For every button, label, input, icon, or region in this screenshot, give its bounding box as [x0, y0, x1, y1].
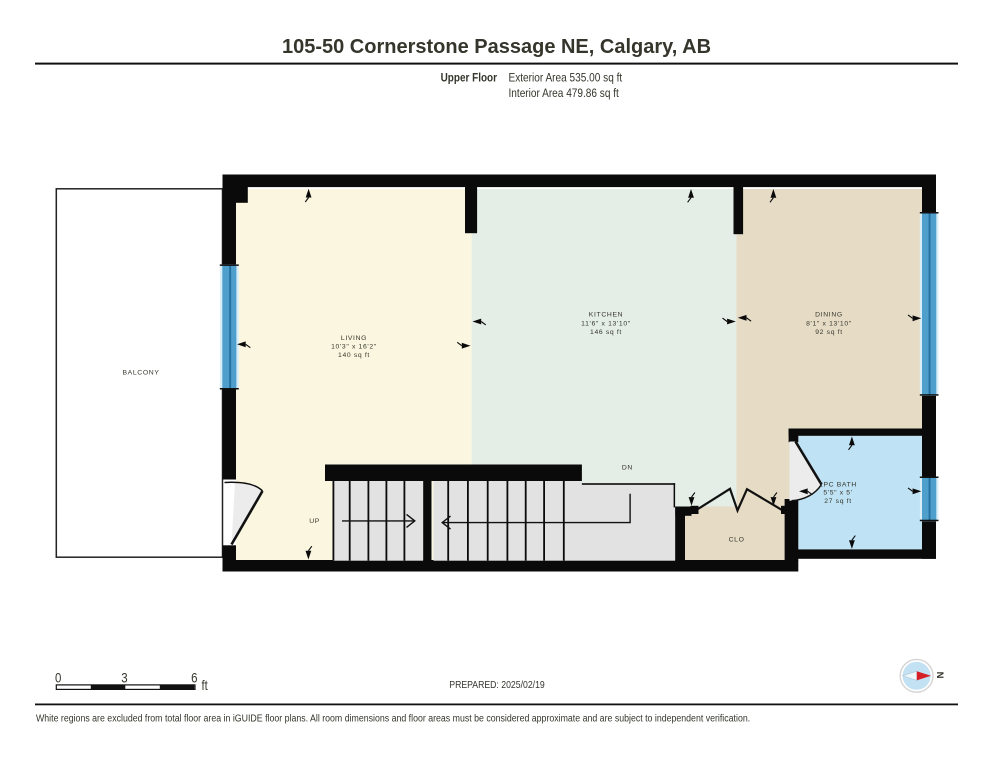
- svg-text:27 sq ft: 27 sq ft: [824, 498, 852, 505]
- svg-text:DN: DN: [622, 465, 633, 472]
- svg-text:N: N: [934, 672, 945, 679]
- svg-text:6: 6: [191, 671, 197, 686]
- svg-text:0: 0: [55, 671, 61, 686]
- svg-text:Upper Floor: Upper Floor: [441, 72, 498, 85]
- svg-text:10'3" x 16'2": 10'3" x 16'2": [331, 344, 377, 351]
- svg-text:CLO: CLO: [729, 536, 745, 543]
- svg-text:8'1" x 13'10": 8'1" x 13'10": [806, 320, 852, 327]
- svg-text:Exterior Area 535.00 sq ft: Exterior Area 535.00 sq ft: [509, 72, 623, 85]
- svg-text:92 sq ft: 92 sq ft: [815, 329, 843, 336]
- svg-text:2PC BATH: 2PC BATH: [819, 481, 857, 488]
- svg-text:5'5" x 5': 5'5" x 5': [823, 490, 852, 497]
- svg-text:ft: ft: [202, 678, 209, 693]
- svg-text:DINING: DINING: [815, 312, 843, 319]
- svg-text:PREPARED: 2025/02/19: PREPARED: 2025/02/19: [449, 679, 544, 690]
- svg-text:LIVING: LIVING: [341, 335, 367, 342]
- svg-text:3: 3: [121, 671, 127, 686]
- svg-text:BALCONY: BALCONY: [122, 370, 159, 377]
- svg-text:105-50 Cornerstone Passage NE,: 105-50 Cornerstone Passage NE, Calgary, …: [282, 36, 711, 58]
- svg-text:146 sq ft: 146 sq ft: [590, 329, 622, 336]
- svg-text:Interior Area 479.86 sq ft: Interior Area 479.86 sq ft: [509, 87, 619, 100]
- svg-text:11'6" x 13'10": 11'6" x 13'10": [581, 320, 631, 327]
- svg-text:140 sq ft: 140 sq ft: [338, 352, 370, 359]
- svg-text:KITCHEN: KITCHEN: [589, 312, 623, 319]
- svg-text:UP: UP: [309, 518, 320, 525]
- svg-text:White regions are excluded fro: White regions are excluded from total fl…: [36, 712, 750, 724]
